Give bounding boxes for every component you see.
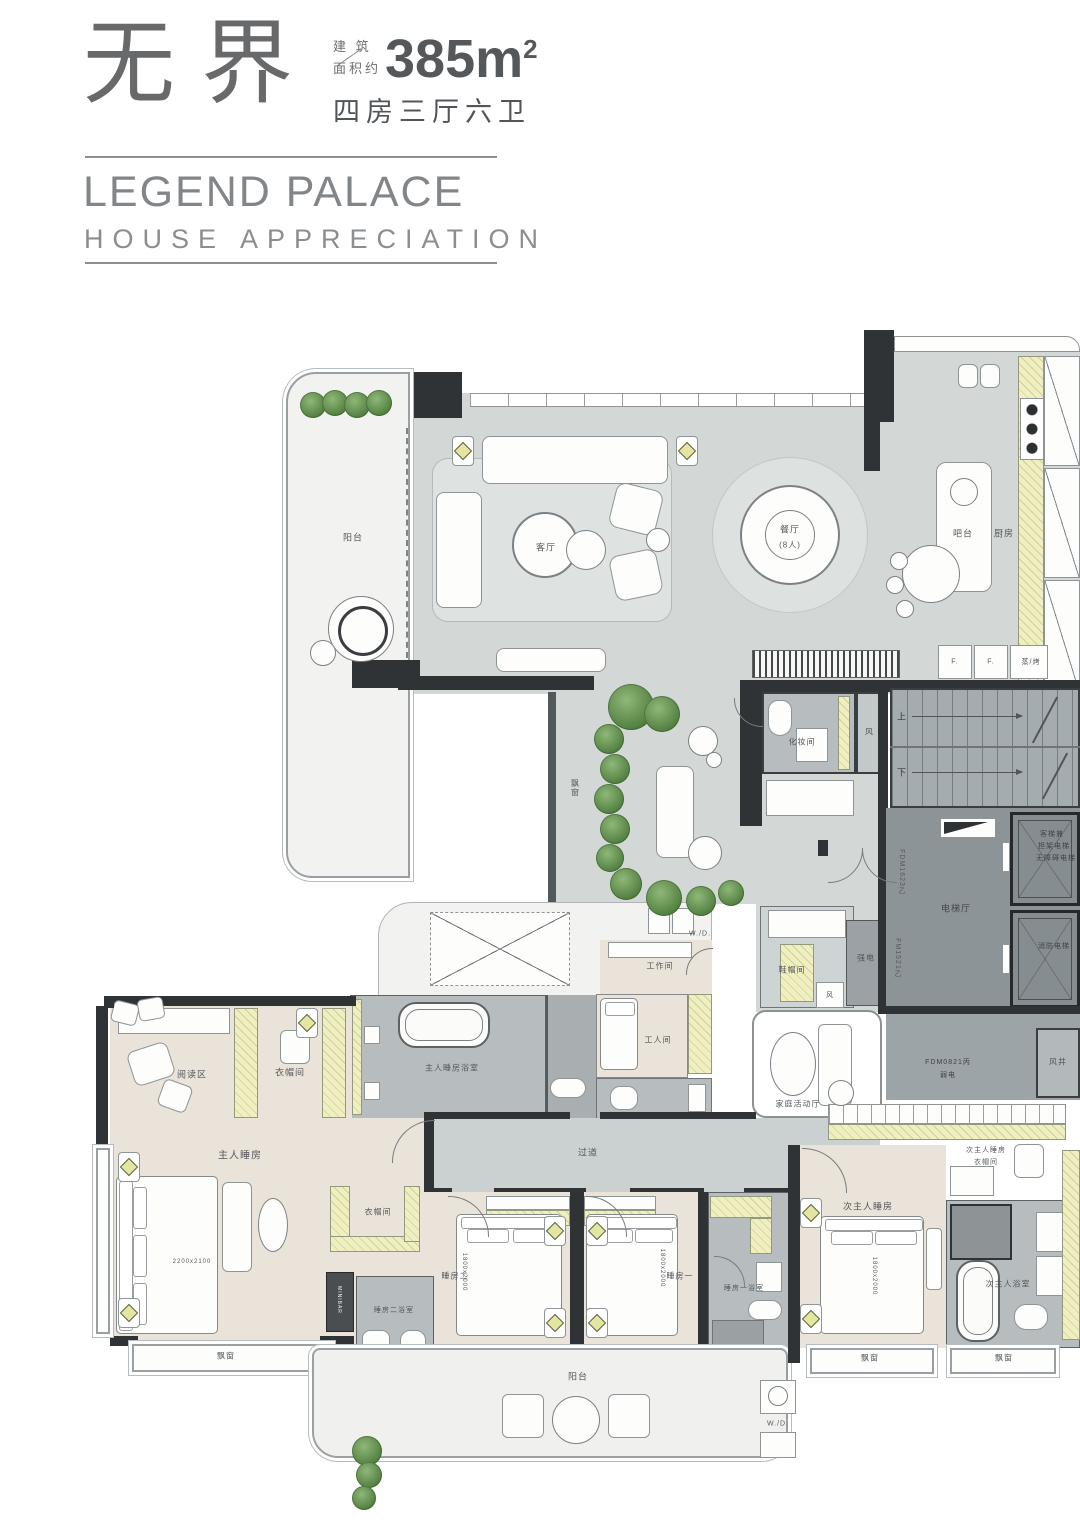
bay-window-west — [96, 1148, 110, 1334]
bar-stool — [890, 552, 908, 570]
toilet — [1014, 1304, 1048, 1330]
closet2-label: 衣帽间 — [365, 1207, 392, 1218]
bidet — [550, 1078, 586, 1098]
oval-table — [258, 1198, 288, 1252]
maid-room-label: 工人间 — [645, 1035, 672, 1046]
wall — [434, 1112, 570, 1119]
wall — [398, 676, 594, 690]
armchair — [608, 548, 665, 603]
speaker-icon — [586, 1216, 608, 1246]
bay-master-label: 飘窗 — [217, 1351, 235, 1362]
dryer-bottom — [760, 1432, 796, 1458]
speaker-icon — [800, 1304, 822, 1334]
side-stool — [310, 640, 336, 666]
wall — [788, 1145, 800, 1363]
wine-rack — [752, 650, 900, 678]
entry-door-label: FDM1623乙 — [896, 849, 906, 895]
plant — [366, 390, 392, 416]
plant — [596, 844, 624, 872]
reading-label: 阅读区 — [177, 1068, 207, 1081]
bath1-tub — [748, 1300, 782, 1320]
vanity-cabinet — [352, 999, 362, 1115]
stairs-down-label: 下 — [897, 766, 907, 779]
maid-wardrobe — [688, 994, 712, 1074]
elevator-shaft-fire — [1010, 910, 1080, 1008]
sm-bath-label: 次主人浴室 — [986, 1279, 1031, 1290]
balcony-bottom-label: 阳台 — [568, 1370, 588, 1383]
skylight-bay — [430, 912, 570, 986]
sm-bath-cabinet — [950, 1166, 994, 1196]
master-bath-label: 主人睡房浴室 — [425, 1063, 479, 1074]
fire-door-label: FM1521乙 — [892, 938, 902, 978]
glass-door-dashed — [406, 428, 408, 658]
fridge-label: F. — [951, 659, 958, 666]
sink — [688, 1084, 706, 1112]
closet1-label: 衣帽间 — [275, 1066, 305, 1079]
plant — [646, 880, 682, 916]
powder-label: 化妆间 — [789, 737, 816, 748]
master-label: 主人睡房 — [218, 1147, 262, 1162]
lounge-chair — [656, 766, 694, 858]
shoe-room-label: 鞋帽间 — [779, 965, 806, 976]
plant — [610, 868, 642, 900]
wardrobe-L-top — [710, 1196, 772, 1218]
balcony-chair — [502, 1394, 544, 1438]
sm-closet-label2: 衣帽间 — [974, 1157, 998, 1167]
bed-bench — [222, 1182, 252, 1272]
steam-oven-label: 蒸/烤 — [1022, 657, 1041, 667]
sm-shower — [950, 1204, 1012, 1260]
hall-ramp — [944, 822, 988, 834]
kitchen-sink — [980, 364, 1000, 388]
balcony-bottom — [312, 1348, 788, 1458]
dining-label: 餐厅 — [780, 523, 800, 536]
speaker-icon — [586, 1308, 608, 1338]
second-master-label: 次主人睡房 — [843, 1200, 893, 1213]
door-jamb — [818, 840, 828, 856]
elevator1-label2: 担架电梯 — [1038, 841, 1070, 851]
vent-label: 风 — [864, 728, 875, 737]
shower — [712, 1320, 764, 1346]
hall-cabinet — [766, 780, 854, 816]
kitchen-label: 厨房 — [994, 527, 1014, 540]
freezer-label: F. — [987, 659, 994, 666]
weak-door-label: FDM0821丙 — [925, 1057, 971, 1067]
floor-plan: 阳台 客厅 — [0, 0, 1080, 1536]
sm-closet-wardrobe — [828, 1124, 1066, 1140]
elevator1-label3: 无障碍电梯 — [1036, 853, 1076, 863]
plant — [644, 696, 680, 732]
wardrobe — [404, 1186, 420, 1242]
toilet — [610, 1086, 638, 1110]
bay3-label: 飘窗 — [861, 1353, 879, 1364]
wardrobe — [234, 1008, 258, 1118]
plant — [352, 1486, 376, 1510]
stool — [828, 1080, 854, 1106]
tall-cabinet — [1044, 356, 1080, 466]
window-band-top — [470, 393, 866, 407]
master-bathtub — [398, 1002, 490, 1048]
wd-label-2: W./D. — [767, 1421, 789, 1428]
sm-closet-box — [1014, 1144, 1044, 1178]
sink — [364, 1082, 380, 1100]
sm-closet-label1: 次主人睡房 — [966, 1145, 1006, 1155]
speaker-icon — [800, 1198, 822, 1228]
master-shower-wc — [546, 995, 596, 1119]
corridor-label: 过道 — [578, 1146, 598, 1159]
plant — [686, 886, 716, 916]
stairs-up-arrow — [912, 716, 1022, 717]
master-bed-size: 2200x2100 — [173, 1259, 212, 1265]
garden-stone — [688, 836, 722, 870]
sm-closet-cabinet — [828, 1104, 1066, 1124]
speaker-icon — [118, 1298, 140, 1328]
work-desk — [608, 942, 692, 958]
plant — [600, 754, 630, 784]
balcony-chair — [608, 1394, 650, 1438]
plant — [594, 724, 624, 754]
stair-landing-line — [890, 746, 1080, 748]
elevator2-label: 消防电梯 — [1038, 941, 1070, 951]
bath1-label: 睡房一浴室 — [724, 1283, 764, 1293]
edge-wardrobe — [1062, 1150, 1080, 1340]
family-room-label: 家庭活动厅 — [776, 1099, 821, 1110]
elevator-hall-label: 电梯厅 — [941, 902, 971, 915]
piano — [770, 1032, 816, 1096]
wall — [570, 1192, 584, 1352]
speaker-icon — [544, 1216, 566, 1246]
bed1-size: 1800x2000 — [659, 1249, 665, 1288]
garden-stone — [706, 752, 722, 768]
washer-drum — [768, 1386, 788, 1406]
plant — [594, 784, 624, 814]
dining-seats-label: (8人) — [779, 540, 801, 551]
speaker-icon — [544, 1308, 566, 1338]
elevator-door — [1002, 944, 1010, 974]
strong-electric-label: 强电 — [857, 953, 875, 964]
sm-bed-size: 1800x2000 — [871, 1257, 877, 1296]
wall — [886, 1006, 1080, 1014]
balcony-top-label: 阳台 — [343, 531, 363, 544]
bath2-label: 睡房二浴室 — [374, 1305, 414, 1315]
minibar-label: MINIBAR — [336, 1286, 342, 1314]
speaker-icon — [296, 1008, 318, 1038]
poster: 无界 建 筑 面积约 385m2 四房三厅六卫 LEGEND PALACE HO… — [0, 0, 1080, 1536]
maid-bed — [600, 998, 638, 1070]
sm-side-table — [926, 1228, 942, 1290]
sink — [364, 1026, 380, 1044]
bar-label: 吧台 — [953, 527, 973, 540]
wall — [104, 996, 114, 1008]
sofa-long — [482, 436, 668, 484]
weak-electric-label: 弱电 — [940, 1070, 956, 1080]
bay4-label: 飘窗 — [995, 1353, 1013, 1364]
stairs-up-label: 上 — [897, 710, 907, 723]
work-room-label: 工作间 — [647, 961, 674, 972]
wardrobe — [322, 1008, 346, 1118]
coffee-table-small — [566, 530, 606, 570]
shoe-cabinet — [768, 910, 846, 938]
kitchen-sink — [958, 364, 978, 388]
bay-terrace-label: 飘窗 — [570, 779, 581, 797]
plant — [600, 814, 630, 844]
wd-label-1: W./D. — [689, 931, 711, 938]
vent2-label: 风 — [826, 990, 834, 1000]
jacuzzi-inner — [338, 606, 388, 656]
elevator1-label1: 客梯兼 — [1040, 829, 1064, 839]
bar-stool — [896, 600, 914, 618]
plant — [356, 1462, 382, 1488]
bar-sink — [950, 478, 978, 506]
gas-stove — [1020, 398, 1044, 460]
elevator-door — [1002, 842, 1010, 872]
wardrobe-top — [486, 1196, 570, 1210]
wall — [548, 692, 556, 934]
bedroom1-label: 睡房一 — [667, 1271, 694, 1282]
wall — [864, 395, 880, 471]
air-shaft-label: 风井 — [1049, 1057, 1067, 1068]
speaker-icon — [118, 1152, 140, 1182]
bar-stool — [886, 576, 904, 594]
toilet — [768, 700, 792, 736]
wall — [600, 1112, 756, 1119]
bar-table — [902, 545, 960, 603]
tall-cabinet — [1044, 468, 1080, 578]
cabinet — [838, 696, 850, 770]
wardrobe-L-side — [750, 1218, 772, 1254]
wall — [698, 1192, 708, 1352]
speaker-icon — [452, 436, 474, 466]
kitchen-top-rail — [894, 336, 1080, 352]
balcony-table — [552, 1396, 600, 1444]
wall — [96, 1006, 108, 1148]
tall-cabinet — [1044, 580, 1080, 692]
bedroom2-label: 睡房二 — [442, 1271, 469, 1282]
side-table — [646, 528, 670, 552]
living-label: 客厅 — [536, 541, 556, 554]
sofa-side — [436, 492, 482, 608]
sm-bathtub — [956, 1260, 1000, 1342]
tv-console — [496, 648, 606, 672]
plant — [718, 880, 744, 906]
stairs-down-arrow — [912, 772, 1022, 773]
cushion — [136, 996, 165, 1022]
speaker-icon — [676, 436, 698, 466]
